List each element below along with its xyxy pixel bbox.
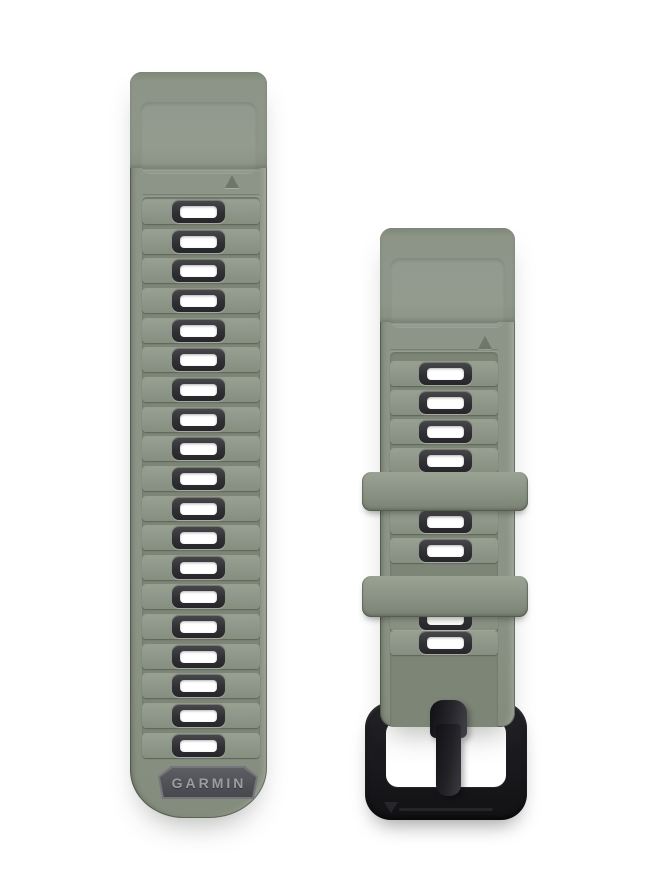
buckle-prong-shaft: [436, 724, 461, 796]
strap-slot-hole: [172, 616, 225, 638]
left-strap-lug-panel: [140, 102, 257, 174]
strap-slot-hole: [172, 409, 225, 431]
strap-slot-hole: [172, 349, 225, 371]
right-strap-triangle-up-icon: [478, 336, 492, 349]
right-strap-lug-panel: [390, 258, 505, 328]
groove-line: [390, 349, 498, 352]
strap-slot-hole: [172, 646, 225, 668]
strap-slot-hole: [172, 260, 225, 282]
strap-slot-hole: [419, 450, 472, 472]
garmin-badge: GARMIN: [158, 766, 258, 799]
keeper-loop-upper: [362, 472, 528, 511]
groove-line: [142, 168, 260, 171]
left-strap-lug-end: [130, 72, 267, 168]
keeper-loop-lower: [362, 576, 528, 617]
strap-slot-hole: [172, 468, 225, 490]
strap-slot-hole: [419, 511, 472, 533]
strap-slot-hole: [172, 498, 225, 520]
garmin-badge-inner: GARMIN: [160, 768, 256, 797]
left-strap-triangle-up-icon: [225, 175, 239, 188]
strap-slot-hole: [419, 363, 472, 385]
strap-slot-hole: [172, 290, 225, 312]
buckle-triangle-down-icon: [384, 802, 398, 813]
strap-slot-hole: [419, 421, 472, 443]
strap-slot-hole: [419, 540, 472, 562]
buckle-bar-highlight: [399, 808, 493, 811]
strap-slot-hole: [172, 557, 225, 579]
garmin-logo-text: GARMIN: [172, 775, 247, 791]
strap-slot-hole: [172, 438, 225, 460]
groove-line: [142, 194, 260, 197]
buckle-prong: [430, 700, 467, 796]
left-strap: GARMIN: [130, 72, 267, 818]
strap-slot-hole: [172, 675, 225, 697]
strap-slot-hole: [172, 527, 225, 549]
strap-slot-hole: [172, 705, 225, 727]
strap-slot-hole: [172, 320, 225, 342]
strap-slot-hole: [419, 632, 472, 654]
strap-slot-hole: [172, 231, 225, 253]
strap-slot-hole: [419, 392, 472, 414]
strap-slot-hole: [172, 379, 225, 401]
right-strap-lug-end: [380, 228, 515, 322]
groove-line: [390, 322, 498, 325]
strap-slot-hole: [172, 201, 225, 223]
strap-slot-hole: [172, 586, 225, 608]
strap-slot-hole: [172, 735, 225, 757]
